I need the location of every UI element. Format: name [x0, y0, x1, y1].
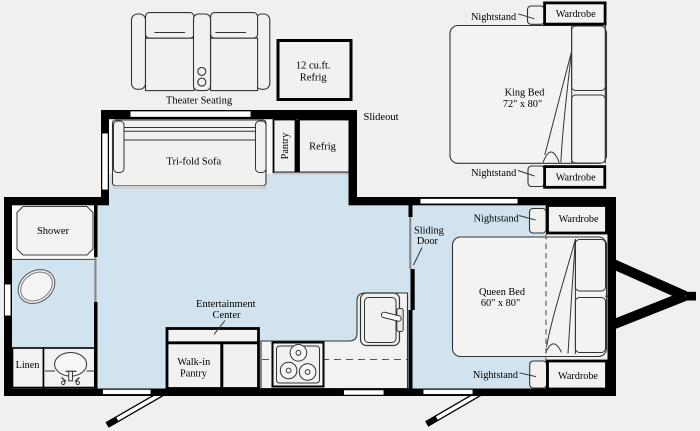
svg-text:Queen Bed: Queen Bed	[479, 287, 526, 298]
svg-text:Entertainment: Entertainment	[196, 299, 256, 310]
svg-text:Slideout: Slideout	[363, 112, 398, 123]
svg-text:King Bed: King Bed	[505, 88, 546, 99]
svg-text:Sliding: Sliding	[414, 226, 444, 237]
svg-text:Nightstand: Nightstand	[471, 168, 517, 179]
svg-text:Wardrobe: Wardrobe	[558, 371, 598, 382]
svg-text:Nightstand: Nightstand	[473, 370, 519, 381]
svg-text:Refrig: Refrig	[300, 72, 328, 83]
svg-text:Nightstand: Nightstand	[471, 12, 517, 23]
svg-text:Wardrobe: Wardrobe	[559, 214, 599, 225]
svg-text:Wardrobe: Wardrobe	[556, 9, 596, 20]
svg-text:Refrig: Refrig	[309, 142, 337, 153]
svg-text:Theater Seating: Theater Seating	[166, 96, 233, 107]
svg-text:12 cu.ft.: 12 cu.ft.	[296, 61, 331, 72]
svg-text:Nightstand: Nightstand	[474, 213, 520, 224]
svg-text:Tri-fold Sofa: Tri-fold Sofa	[166, 156, 221, 167]
svg-text:Door: Door	[417, 236, 439, 247]
svg-text:Pantry: Pantry	[180, 368, 208, 379]
svg-text:60" x 80": 60" x 80"	[481, 298, 520, 309]
svg-text:Walk-in: Walk-in	[177, 357, 210, 368]
svg-text:72" x 80": 72" x 80"	[503, 99, 542, 110]
svg-text:Shower: Shower	[37, 226, 70, 237]
svg-text:Linen: Linen	[16, 360, 40, 371]
svg-text:Pantry: Pantry	[280, 132, 291, 160]
svg-text:Center: Center	[213, 310, 241, 321]
svg-text:Wardrobe: Wardrobe	[556, 173, 596, 184]
